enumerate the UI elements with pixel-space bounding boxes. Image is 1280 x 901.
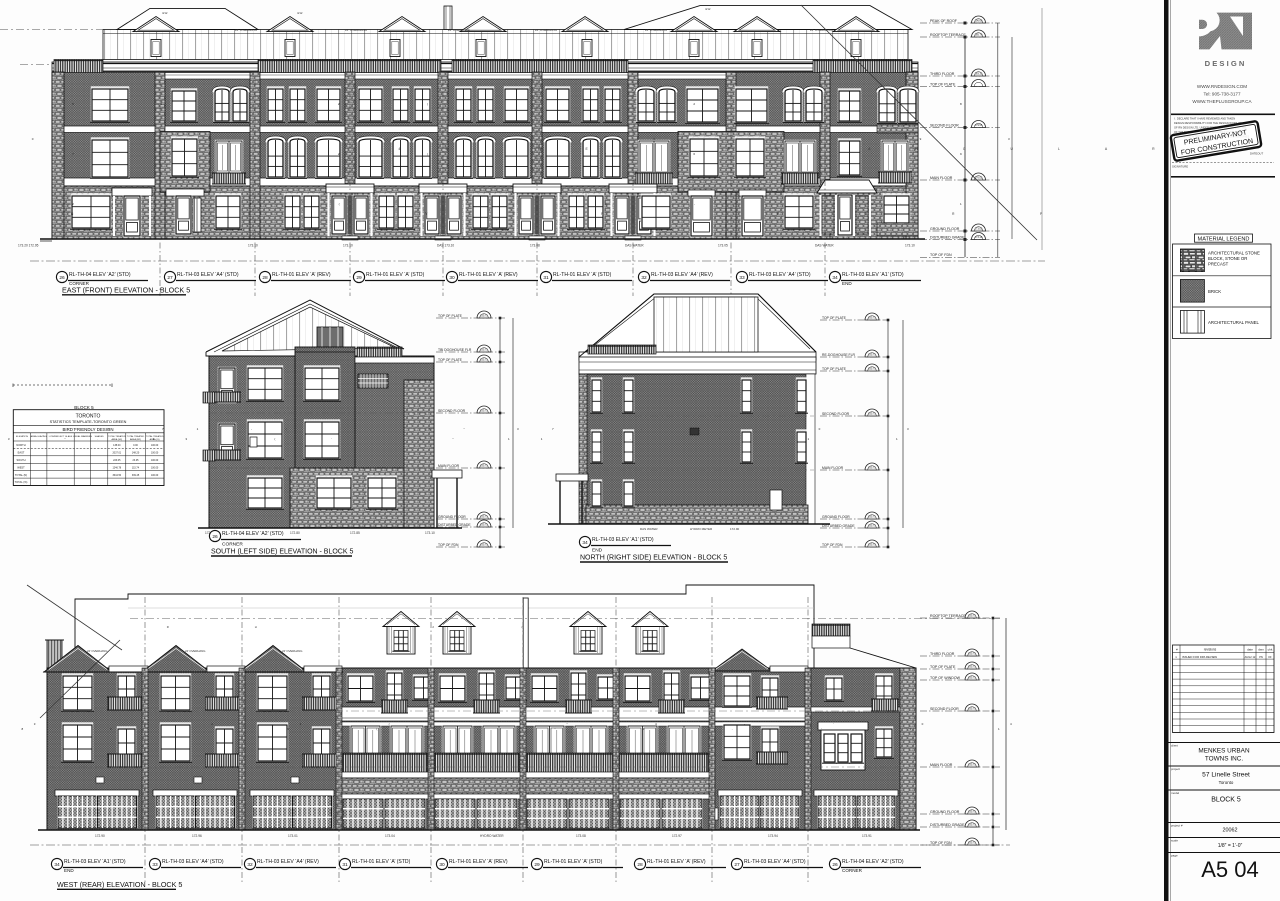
svg-text:165.75: 165.75 [480,348,488,351]
svg-text:RL-TH-01 ELEV ‘A’ (REV): RL-TH-01 ELEV ‘A’ (REV) [459,272,518,278]
svg-text:172.85: 172.85 [350,531,360,535]
svg-text:30: 30 [449,275,455,281]
svg-text:AUG2 12: AUG2 12 [1245,655,1256,659]
svg-text:24′ OVERHANG: 24′ OVERHANG [185,649,205,653]
svg-text:AREA (%): AREA (%) [150,438,160,441]
svg-text:165.75: 165.75 [480,464,488,467]
svg-text:THIRD FLOOR: THIRD FLOOR [930,652,955,656]
svg-text:TOTAL TREATED: TOTAL TREATED [108,435,126,438]
svg-text:57 Linelle Street: 57 Linelle Street [1202,772,1250,779]
svg-text:165.75: 165.75 [968,763,976,766]
svg-text:EAST: EAST [18,451,25,455]
svg-text:34: 34 [54,862,60,868]
svg-text:173.94: 173.94 [768,834,778,838]
svg-text:24′ OVERHANG: 24′ OVERHANG [645,28,668,32]
svg-text:27: 27 [734,862,740,868]
svg-text:183.32: 183.32 [975,72,983,75]
svg-text:173.05: 173.05 [975,227,983,230]
svg-text:24′ OVERHANG: 24′ OVERHANG [282,649,302,653]
svg-text:RL-TH-03 ELEV ‘A4’ (REV): RL-TH-03 ELEV ‘A4’ (REV) [651,272,713,278]
svg-text:148.20: 148.20 [132,452,140,455]
svg-text:END: END [64,868,74,873]
svg-text:date: date [1247,648,1253,652]
svg-text:DAS WATER: DAS WATER [625,244,644,248]
svg-text:NORTH (RIGHT SIDE) ELEVATION -: NORTH (RIGHT SIDE) ELEVATION - BLOCK 5 [580,555,727,562]
svg-text:26: 26 [832,862,838,868]
svg-text:DAS WATER: DAS WATER [640,527,658,531]
svg-text:RL-TH-03 ELEV ‘A1’ (STD): RL-TH-03 ELEV ‘A1’ (STD) [64,859,126,865]
svg-text:I . DECLARE THAT I HAVE REVI: I . DECLARE THAT I HAVE REVIEWED AND TAK… [1174,117,1235,121]
svg-text:185.79: 185.79 [975,33,983,36]
svg-text:ROOFTOP TERRACE: ROOFTOP TERRACE [930,33,966,37]
svg-text:165.75: 165.75 [480,358,488,361]
svg-text:33: 33 [739,275,745,281]
svg-text:165.75: 165.75 [868,524,876,527]
svg-text:DISTURBED GRADE: DISTURBED GRADE [438,523,471,527]
svg-text:LOW/REFLECT GLASS: LOW/REFLECT GLASS [49,435,73,438]
svg-text:TOTAL (N): TOTAL (N) [15,473,27,477]
svg-text:project: project [1171,767,1180,771]
svg-text:PEAK OF ROOF: PEAK OF ROOF [930,19,958,23]
svg-text:165.75: 165.75 [480,543,488,546]
svg-text:173.08: 173.08 [576,834,586,838]
svg-text:RL-TH-03 ELEV ‘A4’ (STD): RL-TH-03 ELEV ‘A4’ (STD) [177,272,239,278]
svg-text:115.74: 115.74 [132,466,140,469]
svg-text:172.96: 172.96 [192,834,202,838]
svg-text:NORTH: NORTH [16,443,25,447]
svg-text:MAIN FLOOR: MAIN FLOOR [822,466,844,470]
svg-text:TORONTO: TORONTO [76,414,101,420]
svg-text:165.75: 165.75 [968,652,976,655]
svg-text:WWW.THEPLUSGROUP.CA: WWW.THEPLUSGROUP.CA [1192,99,1252,104]
svg-text:TOWNS INC.: TOWNS INC. [1205,756,1243,763]
svg-text:VISUAL MARKERS: VISUAL MARKERS [73,435,93,438]
svg-text:DISTURBED GRADE: DISTURBED GRADE [822,524,855,528]
svg-text:196.68: 196.68 [975,19,983,22]
svg-text:100.00: 100.00 [151,474,159,477]
svg-text:34: 34 [832,275,838,281]
svg-text:RL-TH-01 ELEV ‘A’ (REV): RL-TH-01 ELEV ‘A’ (REV) [647,859,706,865]
svg-text:RL-TH-04 ELEV ‘A2’ (STD): RL-TH-04 ELEV ‘A2’ (STD) [222,531,284,537]
svg-text:DAS 173.10: DAS 173.10 [437,244,454,248]
svg-text:27: 27 [167,275,173,281]
svg-text:TOTAL (%): TOTAL (%) [15,480,28,484]
svg-text:MENKES URBAN: MENKES URBAN [1198,748,1250,755]
svg-text:173.05: 173.05 [718,244,728,248]
svg-text:24′ OVERHANG: 24′ OVERHANG [810,28,833,32]
svg-text:SIGNATURE: SIGNATURE [1172,165,1188,169]
svg-text:29: 29 [356,275,362,281]
svg-text:100.00: 100.00 [151,459,159,462]
svg-text:RL-TH-03 ELEV ‘A4’ (STD): RL-TH-03 ELEV ‘A4’ (STD) [744,859,806,865]
svg-text:WEST: WEST [17,465,25,469]
svg-text:173.10: 173.10 [905,244,915,248]
svg-text:ARCHITECTURAL STONE: ARCHITECTURAL STONE [1208,251,1260,256]
svg-text:AREA GLAZING: AREA GLAZING [31,435,47,438]
svg-text:DISTURBED GRADE: DISTURBED GRADE [930,823,965,827]
svg-text:TOP OF WINDOW: TOP OF WINDOW [930,676,961,680]
svg-text:165.75: 165.75 [480,515,488,518]
svg-text:BIRD FRIENDLY DESIGN: BIRD FRIENDLY DESIGN [62,427,113,432]
svg-text:client: client [1171,744,1178,748]
svg-text:31: 31 [543,275,549,281]
svg-text:223.05: 223.05 [113,459,121,462]
svg-text:BLOCK 5: BLOCK 5 [74,405,94,410]
svg-text:D E S I G N: D E S I G N [1205,59,1245,68]
svg-text:173.91: 173.91 [862,834,872,838]
svg-text:26: 26 [59,275,65,281]
svg-text:23.05: 23.05 [133,459,140,462]
svg-text:1/8″ = 1’-0″: 1/8″ = 1’-0″ [1218,843,1243,849]
svg-text:172.90: 172.90 [95,834,105,838]
svg-text:3644.50: 3644.50 [112,474,121,477]
svg-text:TOP OF PLATE: TOP OF PLATE [438,358,463,362]
svg-text:339.45: 339.45 [132,474,140,477]
svg-text:ELEVATION: ELEVATION [16,435,28,438]
svg-text:TOP OF FDN: TOP OF FDN [930,253,952,257]
svg-text:165.75: 165.75 [968,841,976,844]
svg-text:MATERIAL LEGEND: MATERIAL LEGEND [1198,236,1250,242]
svg-text:project #: project # [1171,824,1183,828]
svg-text:173.10: 173.10 [975,236,983,239]
svg-text:SECOND FLOOR: SECOND FLOOR [822,412,850,416]
svg-text:165.75: 165.75 [480,523,488,526]
svg-text:END: END [592,548,603,554]
svg-text:138.00: 138.00 [113,444,121,447]
svg-text:RL-TH-03 ELEV ‘A4’ (REV): RL-TH-03 ELEV ‘A4’ (REV) [257,859,319,865]
svg-text:AREA (M2): AREA (M2) [130,438,141,441]
svg-text:ISSUED FOR DPA REVIEW: ISSUED FOR DPA REVIEW [1182,655,1217,659]
svg-text:CORNER: CORNER [842,868,863,873]
svg-text:100.00: 100.00 [151,452,159,455]
svg-text:DISTURBED GRADE: DISTURBED GRADE [930,235,965,239]
svg-text:PN: PN [1259,655,1263,659]
svg-text:END: END [842,281,852,286]
svg-text:165.75: 165.75 [868,353,876,356]
svg-text:32: 32 [247,862,253,868]
svg-text:SHADED: SHADED [95,435,105,438]
svg-text:ROOFTOP TERRACE: ROOFTOP TERRACE [930,614,966,618]
svg-text:BLOCK, STONE OR: BLOCK, STONE OR [1208,256,1247,261]
svg-text:GROUND FLOOR: GROUND FLOOR [438,515,466,519]
svg-text:SECOND FLOOR: SECOND FLOOR [930,123,959,127]
svg-text:AREA (SF): AREA (SF) [111,438,122,441]
svg-text:PRECAST: PRECAST [1208,262,1229,267]
svg-text:TOP OF FDN: TOP OF FDN [930,841,952,845]
svg-text:165.75: 165.75 [868,515,876,518]
svg-text:32: 32 [641,275,647,281]
svg-text:RL-TH-04 ELEV ‘A2’ (STD): RL-TH-04 ELEV ‘A2’ (STD) [842,859,904,865]
svg-text:31: 31 [342,862,348,868]
svg-text:TOP OF PLATE: TOP OF PLATE [822,316,847,320]
svg-text:RL-TH-01 ELEV ‘A’ (REV): RL-TH-01 ELEV ‘A’ (REV) [449,859,508,865]
svg-text:EAST (FRONT) ELEVATION - BLOCK: EAST (FRONT) ELEVATION - BLOCK 5 [62,286,190,295]
svg-text:GROUND FLOOR: GROUND FLOOR [930,810,960,814]
svg-text:HYDRO WATER: HYDRO WATER [480,834,504,838]
svg-text:100.00: 100.00 [151,444,159,447]
svg-text:Tel: 905-738-3177: Tel: 905-738-3177 [1203,92,1240,97]
svg-text:RL-TH-03 ELEV ‘A4’ (STD): RL-TH-03 ELEV ‘A4’ (STD) [162,859,224,865]
svg-text:34: 34 [582,540,588,546]
svg-text:165.75: 165.75 [480,409,488,412]
svg-text:SECOND FLOOR: SECOND FLOOR [438,409,466,413]
svg-text:165.75: 165.75 [868,367,876,370]
svg-text:STATISTICS TEMPLATE-TORONTO GR: STATISTICS TEMPLATE-TORONTO GREEN [50,420,127,424]
svg-text:165.75: 165.75 [968,810,976,813]
svg-text:173.08: 173.08 [530,244,540,248]
svg-text:173.04: 173.04 [385,834,395,838]
svg-text:TOP OF FDN: TOP OF FDN [822,543,843,547]
svg-text:24′ OVERHANG: 24′ OVERHANG [235,28,258,32]
svg-text:MAIN FLOOR: MAIN FLOOR [438,464,460,468]
svg-text:172.97: 172.97 [672,834,682,838]
svg-text:26: 26 [212,534,218,540]
svg-text:165.75: 165.75 [868,316,876,319]
svg-text:173.10: 173.10 [248,244,258,248]
svg-text:TOP OF FDN: TOP OF FDN [438,543,459,547]
svg-text:TOP OF PLATE: TOP OF PLATE [930,665,956,669]
svg-text:Toronto: Toronto [1219,780,1234,785]
svg-text:CORNER: CORNER [222,542,243,548]
svg-text:24′ OVERHANG: 24′ OVERHANG [535,28,558,32]
svg-text:RE-DOGHOUSE FLR: RE-DOGHOUSE FLR [822,353,856,357]
svg-text:165.75: 165.75 [868,412,876,415]
svg-text:BRICK: BRICK [1208,289,1221,294]
svg-text:SOUTH (LEFT SIDE) ELEVATION -: SOUTH (LEFT SIDE) ELEVATION - BLOCK 5 [211,549,353,556]
svg-text:100.00: 100.00 [151,466,159,469]
svg-text:24′ OVERHANG: 24′ OVERHANG [345,28,368,32]
svg-text:page: page [1171,854,1178,858]
svg-text:165.75: 165.75 [968,823,976,826]
svg-text:2037.01: 2037.01 [112,452,121,455]
svg-text:33: 33 [152,862,158,868]
svg-text:RL-TH-01 ELEV ‘A’ (STD): RL-TH-01 ELEV ‘A’ (STD) [352,859,411,865]
svg-text:179.55: 179.55 [975,124,983,127]
svg-text:30: 30 [439,862,445,868]
svg-text:TOP OF PLATE: TOP OF PLATE [822,367,847,371]
svg-text:24′ OVERHANG: 24′ OVERHANG [448,28,471,32]
svg-text:172.80: 172.80 [290,531,300,535]
svg-text:DATEOUT: DATEOUT [1250,152,1263,156]
svg-text:RL-TH-03 ELEV ‘A4’ (STD): RL-TH-03 ELEV ‘A4’ (STD) [749,272,811,278]
svg-text:SOUTH: SOUTH [16,458,25,462]
svg-text:RL-TH-01 ELEV ‘A’ (REV): RL-TH-01 ELEV ‘A’ (REV) [272,272,331,278]
svg-text:RL-TH-01 ELEV ‘A’ (STD): RL-TH-01 ELEV ‘A’ (STD) [544,859,603,865]
svg-text:1246.78: 1246.78 [112,466,121,469]
svg-text:scale: scale [1171,839,1178,843]
svg-text:chk: chk [1268,648,1273,652]
svg-text:165.75: 165.75 [868,466,876,469]
svg-text:DAS WATER: DAS WATER [815,244,834,248]
svg-text:RL-TH-04 ELEV ‘A2’ (STD): RL-TH-04 ELEV ‘A2’ (STD) [69,272,131,278]
svg-text:165.75: 165.75 [968,665,976,668]
svg-text:165.75: 165.75 [968,707,976,710]
svg-text:model: model [1171,791,1180,795]
svg-text:28: 28 [262,275,268,281]
svg-text:KF: KF [1268,655,1272,659]
svg-text:45 DEGREE ANGULAR PLANE: 45 DEGREE ANGULAR PLANE [398,147,1280,151]
svg-text:172.90: 172.90 [730,527,740,531]
svg-text:GROUND FLOOR: GROUND FLOOR [930,227,960,231]
svg-text:173.10: 173.10 [343,244,353,248]
svg-text:173.20 172.95: 173.20 172.95 [18,244,39,248]
svg-text:TOTAL TREATED: TOTAL TREATED [127,435,145,438]
svg-text:4/12: 4/12 [297,11,303,15]
svg-text:TBI DOGHOUSE FLR: TBI DOGHOUSE FLR [438,348,472,352]
svg-text:SECOND FLOOR: SECOND FLOOR [930,707,959,711]
svg-text:BLOCK 5: BLOCK 5 [1211,797,1241,804]
svg-text:RL-TH-01 ELEV ‘A’ (STD): RL-TH-01 ELEV ‘A’ (STD) [553,272,612,278]
svg-text:24′ OVERHANG: 24′ OVERHANG [87,649,107,653]
svg-text:dwn: dwn [1258,648,1264,652]
svg-text:29: 29 [534,862,540,868]
svg-text:TOTAL TREATED: TOTAL TREATED [146,435,164,438]
svg-text:RL-TH-01 ELEV ‘A’ (STD): RL-TH-01 ELEV ‘A’ (STD) [366,272,425,278]
svg-text:RL-TH-03 ELEV ‘A1’ (STD): RL-TH-03 ELEV ‘A1’ (STD) [592,537,654,543]
svg-text:4/12: 4/12 [162,11,168,15]
svg-text:TOP OF PLATE: TOP OF PLATE [438,314,463,318]
svg-text:GROUND FLOOR: GROUND FLOOR [822,515,850,519]
svg-text:HYDRO METER: HYDRO METER [690,527,713,531]
svg-text:WWW.RNDESIGN.COM: WWW.RNDESIGN.COM [1197,84,1247,89]
svg-text:173.01: 173.01 [288,834,298,838]
svg-text:4/12: 4/12 [705,7,711,11]
svg-text:MAIN FLOOR: MAIN FLOOR [930,763,953,767]
svg-text:ARCHITECTURAL PANEL: ARCHITECTURAL PANEL [1208,320,1259,325]
svg-text:RL-TH-03 ELEV ‘A1’ (STD): RL-TH-03 ELEV ‘A1’ (STD) [842,272,904,278]
svg-text:revisions: revisions [1204,648,1217,652]
svg-text:THIRD FLOOR: THIRD FLOOR [930,72,955,76]
svg-text:WEST (REAR) ELEVATION - BLOCK: WEST (REAR) ELEVATION - BLOCK 5 [57,880,182,889]
svg-text:165.75: 165.75 [868,543,876,546]
svg-text:165.75: 165.75 [480,314,488,317]
svg-text:173.10: 173.10 [425,531,435,535]
svg-text:165.75: 165.75 [968,614,976,617]
svg-text:0.00: 0.00 [133,444,138,447]
svg-text:28: 28 [637,862,643,868]
svg-text:A5 04: A5 04 [1201,857,1259,882]
svg-text:MAIN FLOOR: MAIN FLOOR [930,176,953,180]
svg-text:165.75: 165.75 [968,676,976,679]
svg-text:TOP OF PLATE: TOP OF PLATE [930,82,956,86]
svg-text:20062: 20062 [1223,828,1238,834]
